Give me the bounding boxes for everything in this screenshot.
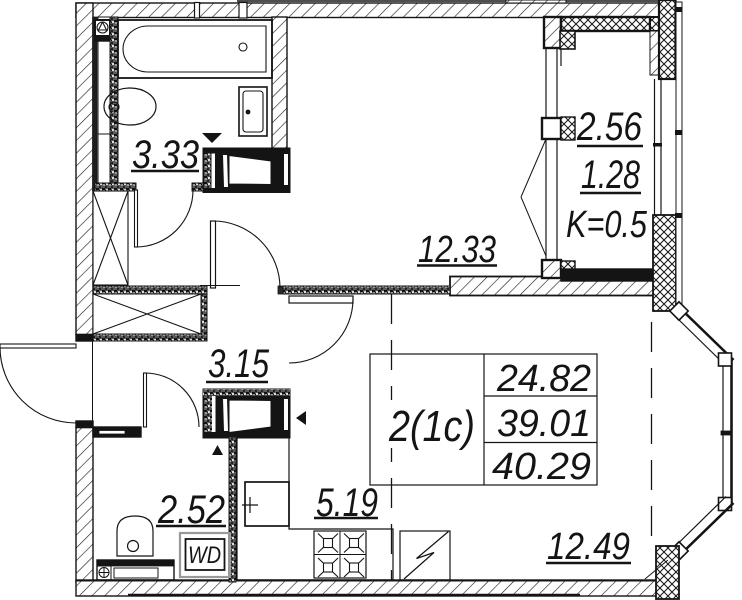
svg-text:K=0.5: K=0.5 bbox=[566, 204, 648, 246]
svg-text:2(1c): 2(1c) bbox=[388, 402, 475, 451]
svg-text:1.28: 1.28 bbox=[581, 153, 641, 197]
svg-text:2.56: 2.56 bbox=[576, 105, 642, 149]
svg-text:WD: WD bbox=[188, 542, 221, 569]
svg-text:40.29: 40.29 bbox=[492, 446, 591, 488]
svg-text:24.82: 24.82 bbox=[496, 358, 591, 400]
svg-text:3.15: 3.15 bbox=[208, 342, 270, 386]
svg-text:39.01: 39.01 bbox=[497, 403, 591, 445]
